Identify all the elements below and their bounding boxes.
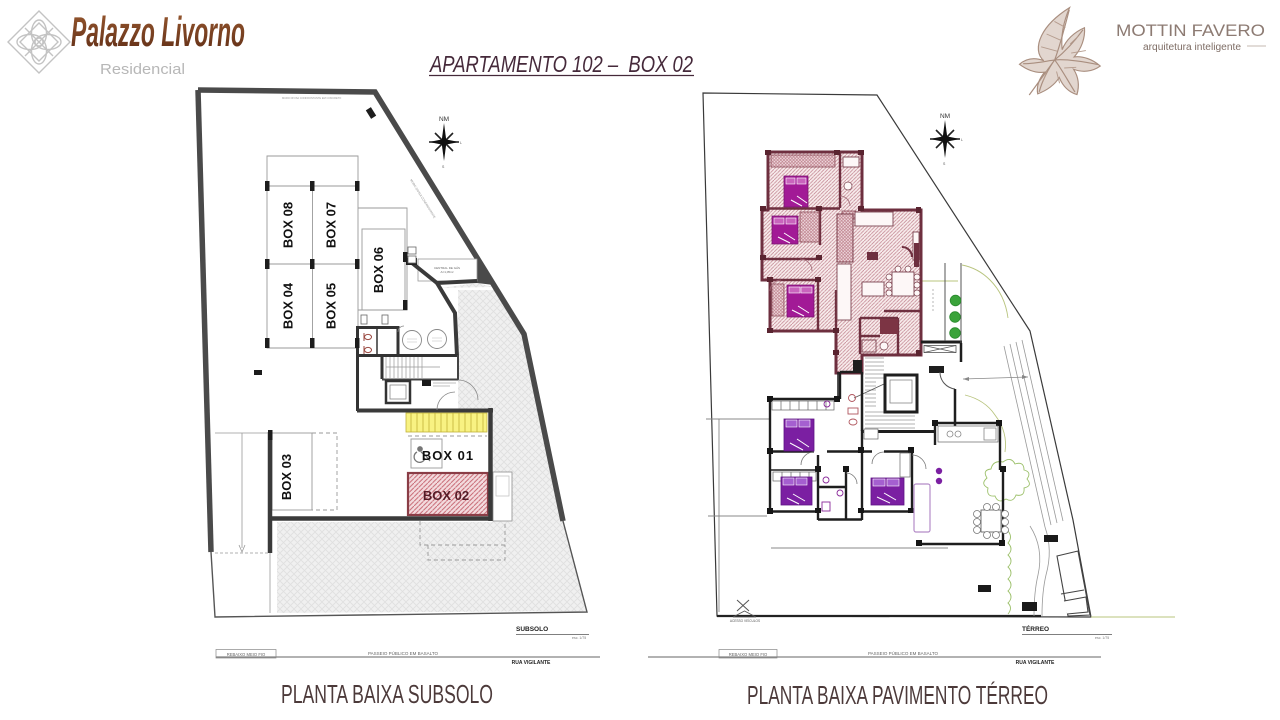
svg-text:RUA VIGILANTE: RUA VIGILANTE: [512, 660, 551, 666]
svg-text:esc. 1/75: esc. 1/75: [1095, 636, 1109, 640]
svg-text:BOX 08: BOX 08: [281, 202, 296, 248]
svg-text:BOX 04: BOX 04: [281, 282, 296, 329]
svg-text:PASSEIO PÚBLICO EM BASALTO: PASSEIO PÚBLICO EM BASALTO: [368, 650, 439, 656]
svg-text:S: S: [442, 165, 445, 169]
svg-text:esc. 1/75: esc. 1/75: [572, 636, 586, 640]
svg-text:SUBSOLO: SUBSOLO: [516, 626, 548, 633]
svg-text:BOX 03: BOX 03: [279, 454, 294, 500]
svg-text:REBAIXO MEIO FIO: REBAIXO MEIO FIO: [729, 652, 768, 657]
svg-text:ACESSO VEÍCULOS: ACESSO VEÍCULOS: [730, 619, 760, 623]
svg-text:A=1,05m²: A=1,05m²: [440, 270, 453, 274]
svg-text:PLANTA BAIXA SUBSOLO: PLANTA BAIXA SUBSOLO: [281, 679, 493, 709]
svg-text:PASSEIO PÚBLICO EM BASALTO: PASSEIO PÚBLICO EM BASALTO: [868, 650, 939, 656]
svg-text:RUA VIGILANTE: RUA VIGILANTE: [1016, 660, 1055, 666]
svg-text:NM: NM: [940, 113, 950, 120]
svg-text:TÉRREO: TÉRREO: [1022, 624, 1049, 633]
svg-text:BOX 07: BOX 07: [324, 202, 339, 248]
svg-text:BOX 05: BOX 05: [324, 283, 339, 329]
svg-text:BOX 06: BOX 06: [371, 247, 386, 293]
svg-text:Residencial: Residencial: [100, 62, 185, 78]
svg-text:NM: NM: [439, 116, 449, 123]
svg-text:arquitetura inteligente: arquitetura inteligente: [1143, 42, 1241, 53]
svg-text:L: L: [460, 141, 462, 145]
svg-text:APARTAMENTO 102 – BOX 02: APARTAMENTO 102 – BOX 02: [428, 51, 693, 77]
svg-text:REBAIXO MEIO FIO: REBAIXO MEIO FIO: [227, 652, 266, 657]
svg-text:PLANTA BAIXA PAVIMENTO TÉRREO: PLANTA BAIXA PAVIMENTO TÉRREO: [747, 681, 1048, 710]
svg-text:BOX 02: BOX 02: [423, 488, 469, 503]
svg-text:L: L: [961, 138, 963, 142]
svg-text:MURO DIVISA CONFRONTANTE EM CO: MURO DIVISA CONFRONTANTE EM CONCRETO: [282, 96, 341, 100]
svg-text:BOX 01: BOX 01: [422, 448, 474, 463]
svg-text:Palazzo Livorno: Palazzo Livorno: [71, 8, 245, 55]
svg-text:S: S: [943, 162, 946, 166]
svg-text:MOTTIN FAVERO: MOTTIN FAVERO: [1116, 22, 1265, 40]
